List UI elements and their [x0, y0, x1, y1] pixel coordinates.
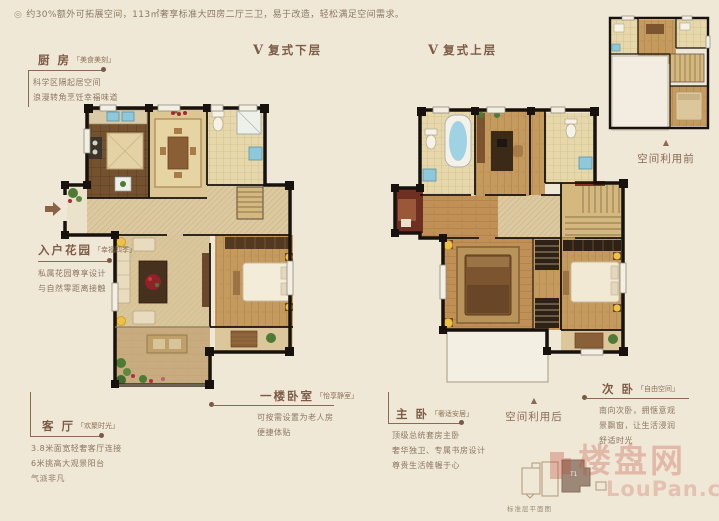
callout-living-desc: 3.8米面宽轻奢客厅连接 6米挑高大观景阳台 气派非凡 — [31, 441, 122, 486]
section-title-text: 复式下层 — [268, 43, 322, 57]
room-tagline: 「自由空间」 — [637, 385, 679, 393]
marker-label: 空间利用前 — [637, 153, 695, 165]
marker-space-before: ▲ 空间利用前 — [618, 139, 714, 166]
callout-bedroom1-desc: 可按需设置为老人房 便捷体贴 — [257, 410, 334, 440]
room-label: 厨 房 — [38, 53, 71, 67]
section-title-text: 复式上层 — [443, 43, 497, 57]
keyplate-caption: 标准层平面图 — [507, 503, 552, 513]
section-title-duplex-upper: V复式上层 — [428, 39, 497, 58]
header-bullet-icon: ◎ — [14, 10, 22, 20]
desc-line: 科学区隔起居空间 — [33, 78, 101, 87]
header-note-text: 约30%额外可拓展空间，113㎡奢享标准大四房二厅三卫，易于改造，轻松满足空间需… — [26, 10, 404, 20]
room-label: 主 卧 — [396, 407, 429, 421]
callout-bedroom1-title: 一楼卧室「怡享静室」 — [260, 388, 358, 404]
room-tagline: 「奢适安居」 — [431, 410, 473, 418]
floorplan-before-utilization — [602, 6, 717, 138]
room-label: 入户花园 — [38, 243, 92, 257]
callout-living-title: 客 厅「欢聚时光」 — [42, 418, 119, 434]
entry-arrow-icon — [44, 202, 62, 216]
desc-line: 私属花园尊享设计 — [38, 269, 106, 278]
room-tagline: 「欢聚时光」 — [77, 422, 119, 430]
loupan-watermark: 楼盘网 LouPan.com — [546, 444, 719, 500]
callout-entry-garden-title: 入户花园「幸福四季」 — [38, 242, 136, 258]
callout-bedroom2-title: 次 卧「自由空间」 — [602, 381, 679, 397]
section-title-duplex-lower: V复式下层 — [253, 39, 322, 58]
room-label: 一楼卧室 — [260, 389, 314, 403]
desc-line: 与自然零距离接触 — [38, 284, 106, 293]
desc-line: 6米挑高大观景阳台 — [31, 459, 105, 468]
desc-line: 顶级总统套房主卧 — [392, 431, 460, 440]
room-label: 次 卧 — [602, 382, 635, 396]
desc-line: 南向次卧，拥惬意观 — [599, 406, 676, 415]
callout-bedroom2-connector — [585, 398, 689, 399]
desc-line: 景飘窗，让生活浸润 — [599, 421, 676, 430]
marker-label: 空间利用后 — [505, 411, 563, 423]
callout-entry-garden-dot — [107, 258, 112, 263]
desc-line: 3.8米面宽轻奢客厅连接 — [31, 444, 122, 453]
section-marker-icon: V — [253, 43, 263, 58]
section-marker-icon: V — [428, 43, 438, 58]
room-label: 客 厅 — [42, 419, 75, 433]
desc-line: 奢华独卫、专属书房设计 — [392, 446, 486, 455]
floorplan-duplex-upper — [385, 95, 640, 395]
loupan-logo-icon — [546, 444, 576, 482]
callout-bedroom1-connector — [212, 405, 334, 406]
desc-line: 可按需设置为老人房 — [257, 413, 334, 422]
room-tagline: 「幸福四季」 — [94, 246, 136, 254]
room-tagline: 「美食美刻」 — [73, 56, 115, 64]
callout-entry-garden-desc: 私属花园尊享设计 与自然零距离接触 — [38, 266, 106, 296]
desc-line: 便捷体贴 — [257, 428, 291, 437]
callout-master-desc: 顶级总统套房主卧 奢华独卫、专属书房设计 尊贵生活帷幄于心 — [392, 428, 486, 473]
callout-kitchen-title: 厨 房「美食美刻」 — [38, 52, 115, 68]
room-tagline: 「怡享静室」 — [316, 392, 358, 400]
desc-line: 气派非凡 — [31, 474, 65, 483]
callout-entry-garden-connector — [38, 261, 110, 262]
desc-line: 尊贵生活帷幄于心 — [392, 461, 460, 470]
watermark-cn: 楼盘网 — [578, 444, 719, 478]
floorplan-page: ◎约30%额外可拓展空间，113㎡奢享标准大四房二厅三卫，易于改造，轻松满足空间… — [0, 0, 719, 521]
header-note: ◎约30%额外可拓展空间，113㎡奢享标准大四房二厅三卫，易于改造，轻松满足空间… — [14, 7, 704, 20]
callout-kitchen-desc: 科学区隔起居空间 浪漫转角烹饪幸福味道 — [33, 75, 118, 105]
desc-line: 浪漫转角烹饪幸福味道 — [33, 93, 118, 102]
triangle-up-icon: ▲ — [618, 139, 714, 147]
callout-master-title: 主 卧「奢适安居」 — [396, 406, 473, 422]
callout-kitchen-dot — [101, 67, 106, 72]
triangle-up-icon: ▲ — [486, 397, 582, 405]
watermark-en: LouPan.com — [606, 478, 719, 500]
marker-space-after: ▲ 空间利用后 — [486, 397, 582, 424]
